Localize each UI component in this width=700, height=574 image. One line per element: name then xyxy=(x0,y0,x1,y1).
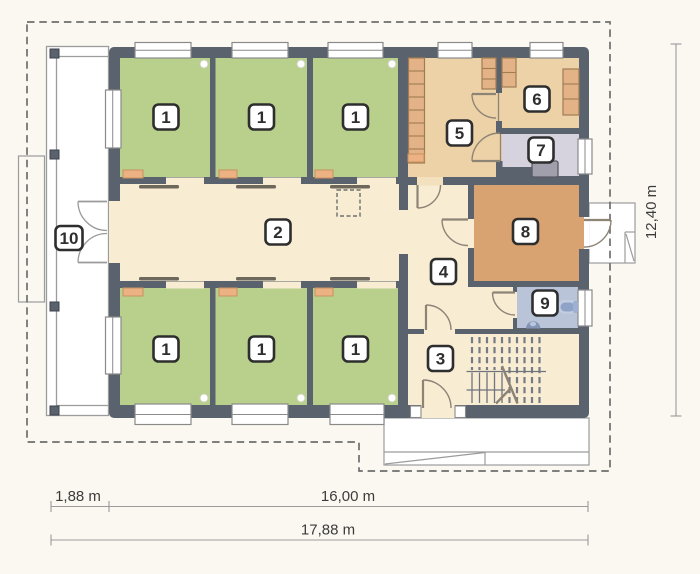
svg-text:10: 10 xyxy=(60,229,79,248)
svg-text:1: 1 xyxy=(351,340,360,359)
svg-text:1: 1 xyxy=(161,340,170,359)
svg-text:1: 1 xyxy=(351,108,360,127)
svg-text:6: 6 xyxy=(532,90,541,109)
svg-text:2: 2 xyxy=(273,223,282,242)
svg-text:17,88 m: 17,88 m xyxy=(301,522,355,539)
svg-text:7: 7 xyxy=(536,141,545,160)
svg-text:1: 1 xyxy=(257,108,266,127)
svg-text:8: 8 xyxy=(521,223,530,242)
svg-text:16,00 m: 16,00 m xyxy=(321,488,375,505)
svg-text:1,88 m: 1,88 m xyxy=(55,488,101,505)
svg-text:12,40 m: 12,40 m xyxy=(643,185,660,239)
svg-text:3: 3 xyxy=(436,350,445,369)
svg-text:1: 1 xyxy=(257,340,266,359)
svg-text:4: 4 xyxy=(439,263,449,282)
svg-text:5: 5 xyxy=(455,124,464,143)
svg-text:1: 1 xyxy=(161,108,170,127)
svg-text:9: 9 xyxy=(540,294,549,313)
